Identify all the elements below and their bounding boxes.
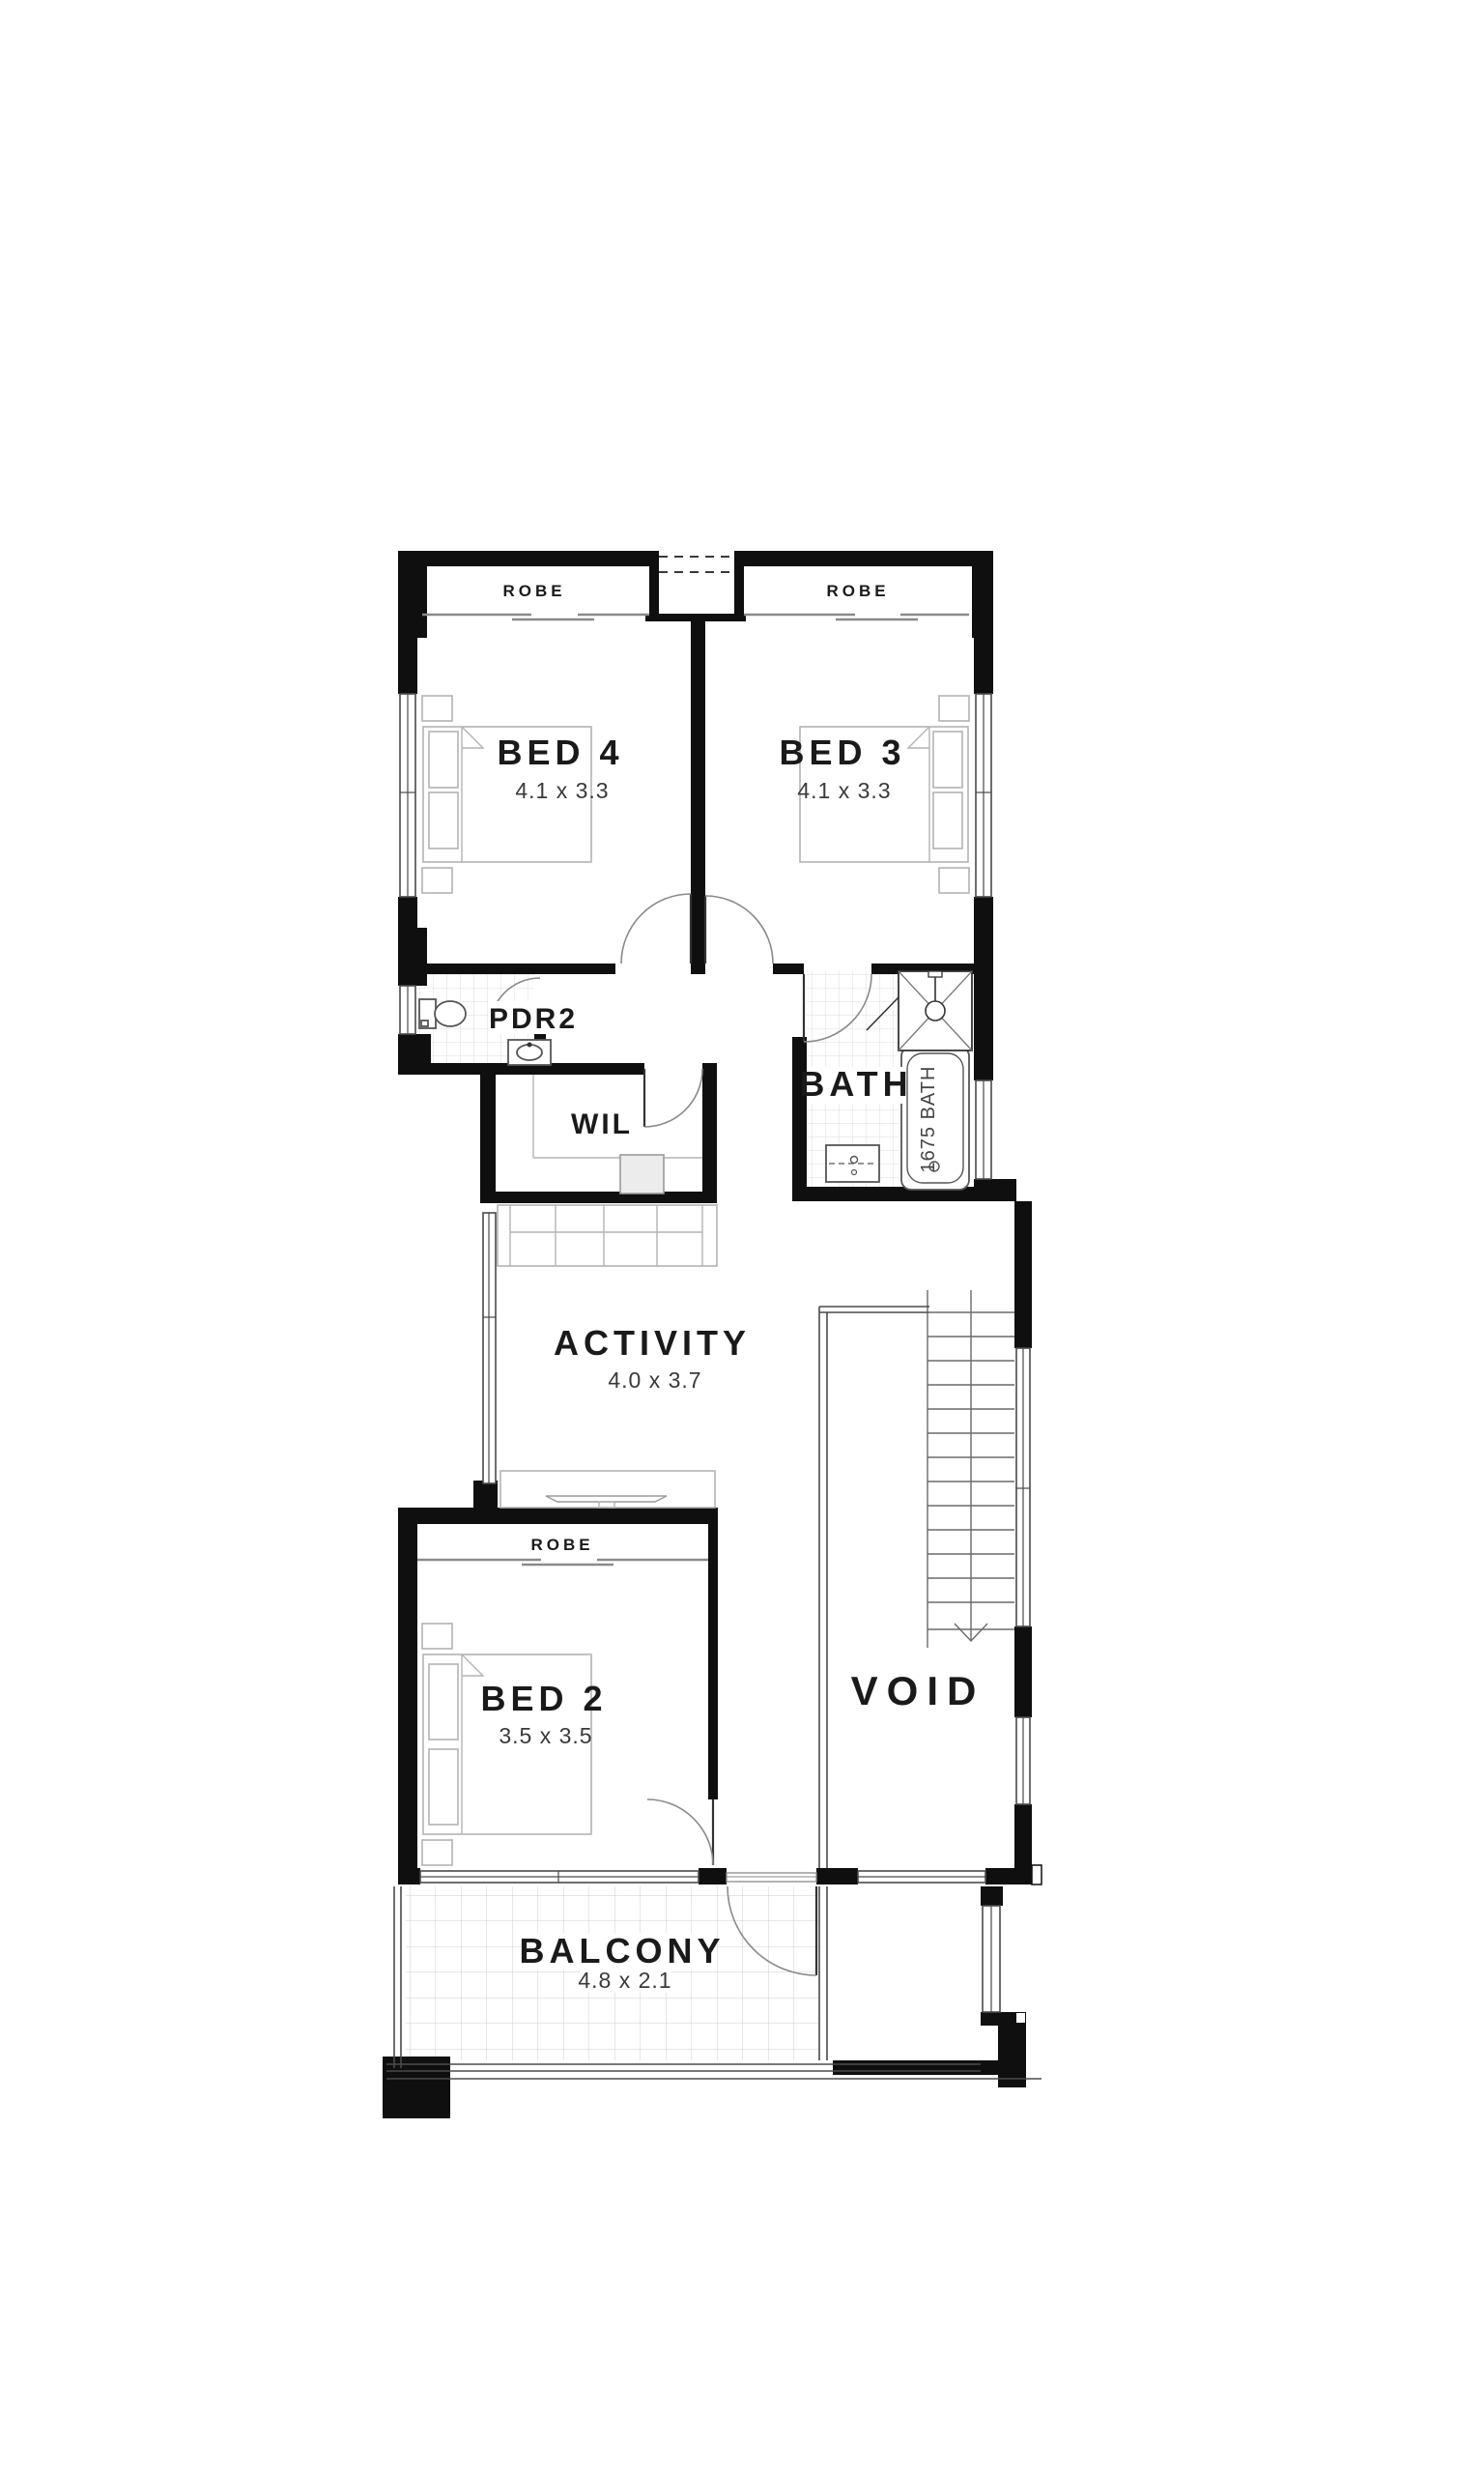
bed2-robe-track bbox=[417, 1560, 708, 1565]
bed2-door bbox=[647, 1799, 713, 1865]
toilet bbox=[419, 999, 466, 1028]
bed2-side-table-2 bbox=[422, 1840, 452, 1865]
pier-notch bbox=[1016, 2013, 1025, 2023]
bed3-robe-track bbox=[744, 615, 969, 619]
bed4-robe-label: ROBE bbox=[502, 582, 565, 600]
floor-plan: ROBE ROBE BED 4 4.1 x 3.3 BED 3 4.1 x 3.… bbox=[0, 0, 1484, 2474]
room-dims-balcony: 4.8 x 2.1 bbox=[578, 1968, 671, 1993]
bath-vanity bbox=[826, 1145, 879, 1182]
bed2-robe-label: ROBE bbox=[530, 1536, 593, 1554]
room-label-bed4: BED 4 bbox=[497, 733, 623, 772]
room-label-balcony: BALCONY bbox=[520, 1931, 726, 1971]
bed2-side-table bbox=[422, 1624, 452, 1649]
bed4-side-table-2 bbox=[422, 868, 452, 893]
room-dims-bed2: 3.5 x 3.5 bbox=[499, 1723, 592, 1748]
bed3-side-table-2 bbox=[939, 868, 969, 893]
room-label-wil: WIL bbox=[571, 1108, 633, 1140]
bed4-side-table bbox=[422, 696, 452, 721]
room-label-pdr2: PDR2 bbox=[489, 1003, 578, 1035]
room-dims-bed4: 4.1 x 3.3 bbox=[515, 778, 609, 803]
bed2-window bbox=[420, 1871, 699, 1883]
overhead-dashed-lines bbox=[659, 557, 734, 572]
room-dims-activity: 4.0 x 3.7 bbox=[608, 1367, 701, 1393]
room-label-bed3: BED 3 bbox=[779, 733, 905, 772]
wil-door bbox=[644, 1069, 702, 1127]
room-label-bath: BATH bbox=[799, 1064, 912, 1104]
void-window bbox=[1016, 1717, 1030, 1804]
room-dims-bed3: 4.1 x 3.3 bbox=[797, 778, 891, 803]
stair-window bbox=[1016, 1348, 1030, 1626]
bed3-robe-label: ROBE bbox=[826, 582, 889, 600]
bath-window bbox=[976, 1080, 991, 1179]
bed4-window bbox=[400, 694, 415, 897]
void-south-window bbox=[858, 1871, 985, 1883]
room-label-activity: ACTIVITY bbox=[554, 1323, 751, 1363]
bathtub-label: 1675 BATH bbox=[918, 1066, 939, 1173]
lower-right-window bbox=[983, 1906, 1000, 2012]
activity-window bbox=[483, 1213, 496, 1483]
bed3-door bbox=[705, 896, 773, 964]
pdr2-basin bbox=[508, 1040, 551, 1065]
bed3-side-table bbox=[939, 696, 969, 721]
tv-unit bbox=[500, 1471, 715, 1508]
shower-rose bbox=[926, 1001, 945, 1021]
activity-sofa bbox=[498, 1205, 717, 1266]
room-label-bed2: BED 2 bbox=[480, 1679, 607, 1718]
balcony-door-sill bbox=[727, 1873, 816, 1882]
wall-step bbox=[1032, 1865, 1042, 1884]
bed4-door bbox=[621, 894, 691, 964]
room-label-void: VOID bbox=[851, 1668, 985, 1713]
bed3-window bbox=[976, 694, 991, 897]
pdr2-window bbox=[400, 986, 415, 1034]
bed4-robe-track bbox=[422, 615, 649, 619]
